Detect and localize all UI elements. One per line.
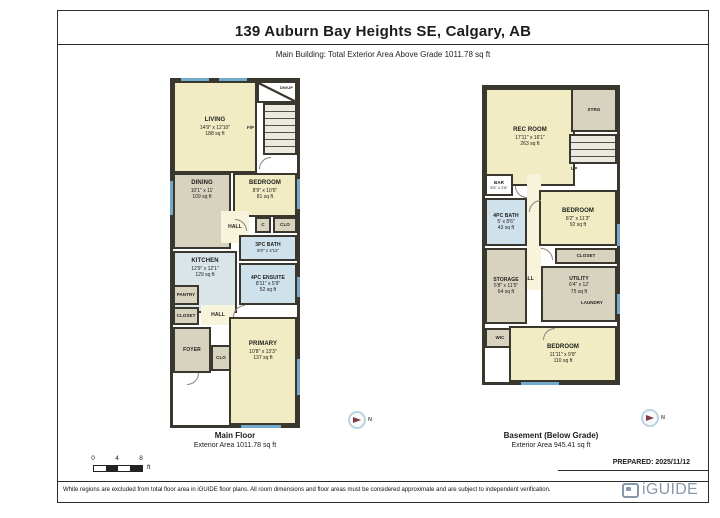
room-area: 110 sq ft bbox=[554, 358, 573, 364]
room-strg: STRG bbox=[571, 88, 617, 132]
room-utility: UTILITY 6'4" x 12' 75 sq ft bbox=[541, 266, 617, 322]
room-name: BEDROOM bbox=[547, 344, 579, 352]
room-area: 129 sq ft bbox=[195, 272, 214, 278]
floor-plan-page: 139 Auburn Bay Heights SE, Calgary, AB M… bbox=[0, 0, 720, 518]
window-marker bbox=[617, 224, 620, 246]
room-closet-basement: CLOSET bbox=[555, 248, 617, 264]
basement-caption: Basement (Below Grade) Exterior Area 945… bbox=[482, 431, 620, 450]
closet-clo-2: CLO bbox=[211, 345, 231, 371]
door-arc bbox=[515, 186, 527, 198]
stairs-main bbox=[263, 103, 297, 155]
room-name: PANTRY bbox=[177, 292, 196, 298]
room-area: 43 sq ft bbox=[498, 225, 514, 231]
iguide-logo: iGUIDE bbox=[622, 481, 698, 499]
room-area: 92 sq ft bbox=[570, 222, 586, 228]
compass-arrow bbox=[353, 417, 361, 423]
room-area: 52 sq ft bbox=[260, 287, 276, 293]
page-subtitle: Main Building: Total Exterior Area Above… bbox=[57, 50, 709, 59]
room-area: 137 sq ft bbox=[253, 355, 272, 361]
room-name: DN/UP bbox=[280, 85, 293, 90]
room-name: FOYER bbox=[183, 347, 201, 353]
room-ensuite: 4PC ENSUITE 8'11" x 5'9" 52 sq ft bbox=[239, 263, 297, 305]
prepared-date: PREPARED: 2025/11/12 bbox=[558, 459, 690, 466]
scale-bar-segments bbox=[93, 465, 143, 472]
door-arc bbox=[541, 248, 553, 260]
room-closet: CLOSET bbox=[173, 307, 199, 325]
compass-north-label: N bbox=[661, 415, 665, 421]
compass-arrow bbox=[646, 415, 654, 421]
window-marker bbox=[219, 78, 247, 81]
scale-segment bbox=[106, 466, 118, 471]
closet-c: C bbox=[255, 217, 271, 233]
room-area: 64 sq ft bbox=[498, 289, 514, 295]
floor-area: Exterior Area 1011.78 sq ft bbox=[170, 441, 300, 450]
window-marker bbox=[297, 277, 300, 297]
floor-title: Main Floor bbox=[170, 431, 300, 441]
window-marker bbox=[521, 382, 559, 385]
room-area: 263 sq ft bbox=[520, 141, 539, 147]
basement-plan: REC ROOM 17'11" x 16'1" 263 sq ft STRG U… bbox=[482, 85, 620, 385]
room-name: CLOSET bbox=[177, 313, 196, 319]
title-rule bbox=[57, 44, 709, 45]
main-floor-plan: LIVING 14'9" x 12'10" 188 sq ft DN/UP F/… bbox=[170, 78, 300, 428]
room-name: DINING bbox=[191, 180, 213, 188]
entry-stairwell: DN/UP bbox=[257, 81, 297, 103]
iguide-logo-icon-inner bbox=[626, 487, 631, 491]
page-title: 139 Auburn Bay Heights SE, Calgary, AB bbox=[57, 23, 709, 40]
room-bedroom-1: BEDROOM 8'2" x 11'3" 92 sq ft bbox=[539, 190, 617, 246]
scale-segment bbox=[94, 466, 106, 471]
room-pantry: PANTRY bbox=[173, 285, 199, 305]
fireplace-label: F/P bbox=[247, 125, 254, 130]
scale-bar: 0 4 8 ft bbox=[90, 455, 180, 475]
scale-tick-8: 8 bbox=[138, 455, 144, 462]
window-marker bbox=[297, 359, 300, 395]
room-bar: BAR 5'5" x 2'6" bbox=[485, 174, 513, 196]
room-area: 188 sq ft bbox=[205, 131, 224, 137]
room-name: CLO bbox=[216, 355, 226, 361]
room-name: BEDROOM bbox=[562, 208, 594, 216]
window-marker bbox=[297, 179, 300, 209]
compass-icon: N bbox=[348, 411, 372, 429]
closet-clo: CLO bbox=[273, 217, 297, 233]
room-area: 81 sq ft bbox=[257, 194, 273, 200]
room-name: HALL bbox=[211, 312, 225, 318]
scale-unit: ft bbox=[147, 464, 151, 471]
stairs-up-label: UP bbox=[571, 166, 577, 171]
window-marker bbox=[241, 425, 281, 428]
room-bedroom-2: BEDROOM 11'11" x 9'9" 110 sq ft bbox=[509, 326, 617, 382]
room-name: STRG bbox=[588, 107, 601, 113]
door-arc bbox=[259, 157, 271, 169]
room-area: 75 sq ft bbox=[571, 289, 587, 295]
compass-circle bbox=[641, 409, 659, 427]
window-marker bbox=[170, 181, 173, 215]
room-name: C bbox=[261, 222, 264, 228]
door-arc bbox=[187, 373, 199, 385]
compass-circle bbox=[348, 411, 366, 429]
room-3pc-bath: 3PC BATH 8'0" x 4'11" bbox=[239, 235, 297, 261]
compass-icon: N bbox=[641, 409, 665, 427]
room-name: WIC bbox=[495, 335, 504, 341]
room-4pc-bath: 4PC BATH 5' x 8'6" 43 sq ft bbox=[485, 198, 527, 246]
footer-rule bbox=[57, 481, 709, 482]
room-rec-room: REC ROOM 17'11" x 16'1" 263 sq ft bbox=[485, 88, 575, 186]
room-name: CLOSET bbox=[577, 253, 596, 259]
window-marker bbox=[617, 294, 620, 314]
scale-segment bbox=[118, 466, 130, 471]
main-floor-caption: Main Floor Exterior Area 1011.78 sq ft bbox=[170, 431, 300, 450]
iguide-logo-text: iGUIDE bbox=[642, 481, 698, 499]
floor-area: Exterior Area 945.41 sq ft bbox=[482, 441, 620, 450]
room-area: 109 sq ft bbox=[192, 194, 211, 200]
disclaimer-text: White regions are excluded from total fl… bbox=[63, 487, 551, 493]
window-marker bbox=[181, 78, 209, 81]
compass-north-label: N bbox=[368, 417, 372, 423]
room-name: KITCHEN bbox=[191, 258, 218, 266]
room-dims: 8'0" x 4'11" bbox=[257, 248, 279, 254]
room-name: REC ROOM bbox=[513, 127, 547, 135]
room-name: CLO bbox=[280, 222, 290, 228]
room-name: BEDROOM bbox=[249, 180, 281, 188]
room-name: PRIMARY bbox=[249, 341, 277, 349]
room-name: LIVING bbox=[205, 117, 226, 125]
iguide-logo-icon bbox=[622, 483, 639, 498]
room-living: LIVING 14'9" x 12'10" 188 sq ft bbox=[173, 81, 257, 173]
scale-segment bbox=[130, 466, 142, 471]
room-storage: STORAGE 5'8" x 11'5" 64 sq ft bbox=[485, 248, 527, 324]
room-foyer: FOYER bbox=[173, 327, 211, 373]
stairs-basement bbox=[569, 134, 617, 164]
scale-tick-0: 0 bbox=[90, 455, 96, 462]
floor-title: Basement (Below Grade) bbox=[482, 431, 620, 441]
room-primary: PRIMARY 10'8" x 13'3" 137 sq ft bbox=[229, 317, 297, 425]
scale-tick-4: 4 bbox=[114, 455, 120, 462]
prepared-rule bbox=[558, 470, 708, 471]
room-dims: 5'5" x 2'6" bbox=[490, 185, 508, 190]
laundry-label: LAUNDRY bbox=[581, 300, 603, 305]
